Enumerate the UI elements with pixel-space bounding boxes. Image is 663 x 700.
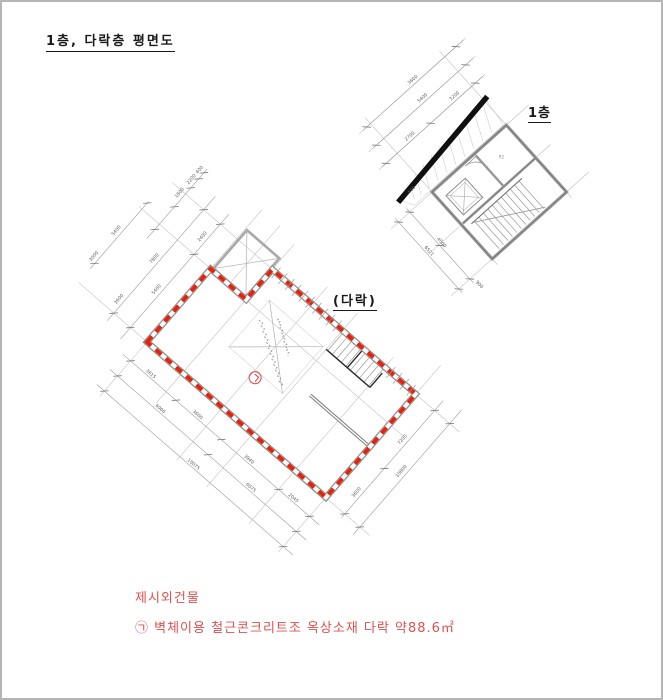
partition-wall [310,395,370,447]
dim-label: 2400 [197,230,209,243]
attic-dimensions: 400 1800 2200 2400 5400 7800 3600 5400 3… [28,149,474,581]
attic-plan: 400 1800 2200 2400 5400 7800 3600 5400 3… [25,145,484,590]
dim-label: 3200 [448,90,461,102]
floor1-walls [432,125,567,259]
dim-label: 7800 [148,252,160,265]
floor1-plan-label: 1층 [528,102,551,123]
dim-label: 5400 [151,283,163,296]
floor1-dimensions: 2700 3200 5400 3600 600 4500 6521 900 [330,35,595,302]
dim-label: 10800 [394,464,408,479]
dim-label: 5400 [416,92,429,104]
document-page: R2 2700 3200 540 [0,0,663,700]
dim-label: 7200 [396,433,408,446]
dim-label: 3000 [88,250,100,263]
floor1-plan: R2 2700 3200 540 [324,31,599,307]
note-attic-area: ㉠ 벽체이용 철근콘크리트조 옥상소재 다락 약88.6㎡ [135,617,455,636]
unit-mark-symbol [247,369,264,386]
note-exterior-building: 제시외건물 [135,587,200,606]
void-cross [229,300,323,393]
staircase [471,178,546,251]
dim-label: 3600 [351,486,363,499]
attic-plan-label: (다락) [333,290,377,311]
attic-grid-lines [28,148,484,590]
stair-bulkhead [213,230,279,297]
floorplan-drawing: R2 2700 3200 540 [2,2,663,700]
dim-label: 5400 [110,224,122,237]
room-label: R2 [499,155,505,160]
page-title: 1층, 다락층 평면도 [46,30,175,52]
dim-label: 900 [474,279,484,290]
dim-label: 10075 [186,457,201,471]
dim-label: 3600 [113,293,125,306]
dim-label: 2700 [404,130,417,142]
dim-label: 1800 [174,187,186,200]
attic-outline-wall [147,239,416,498]
dim-label: 3600 [407,74,420,86]
